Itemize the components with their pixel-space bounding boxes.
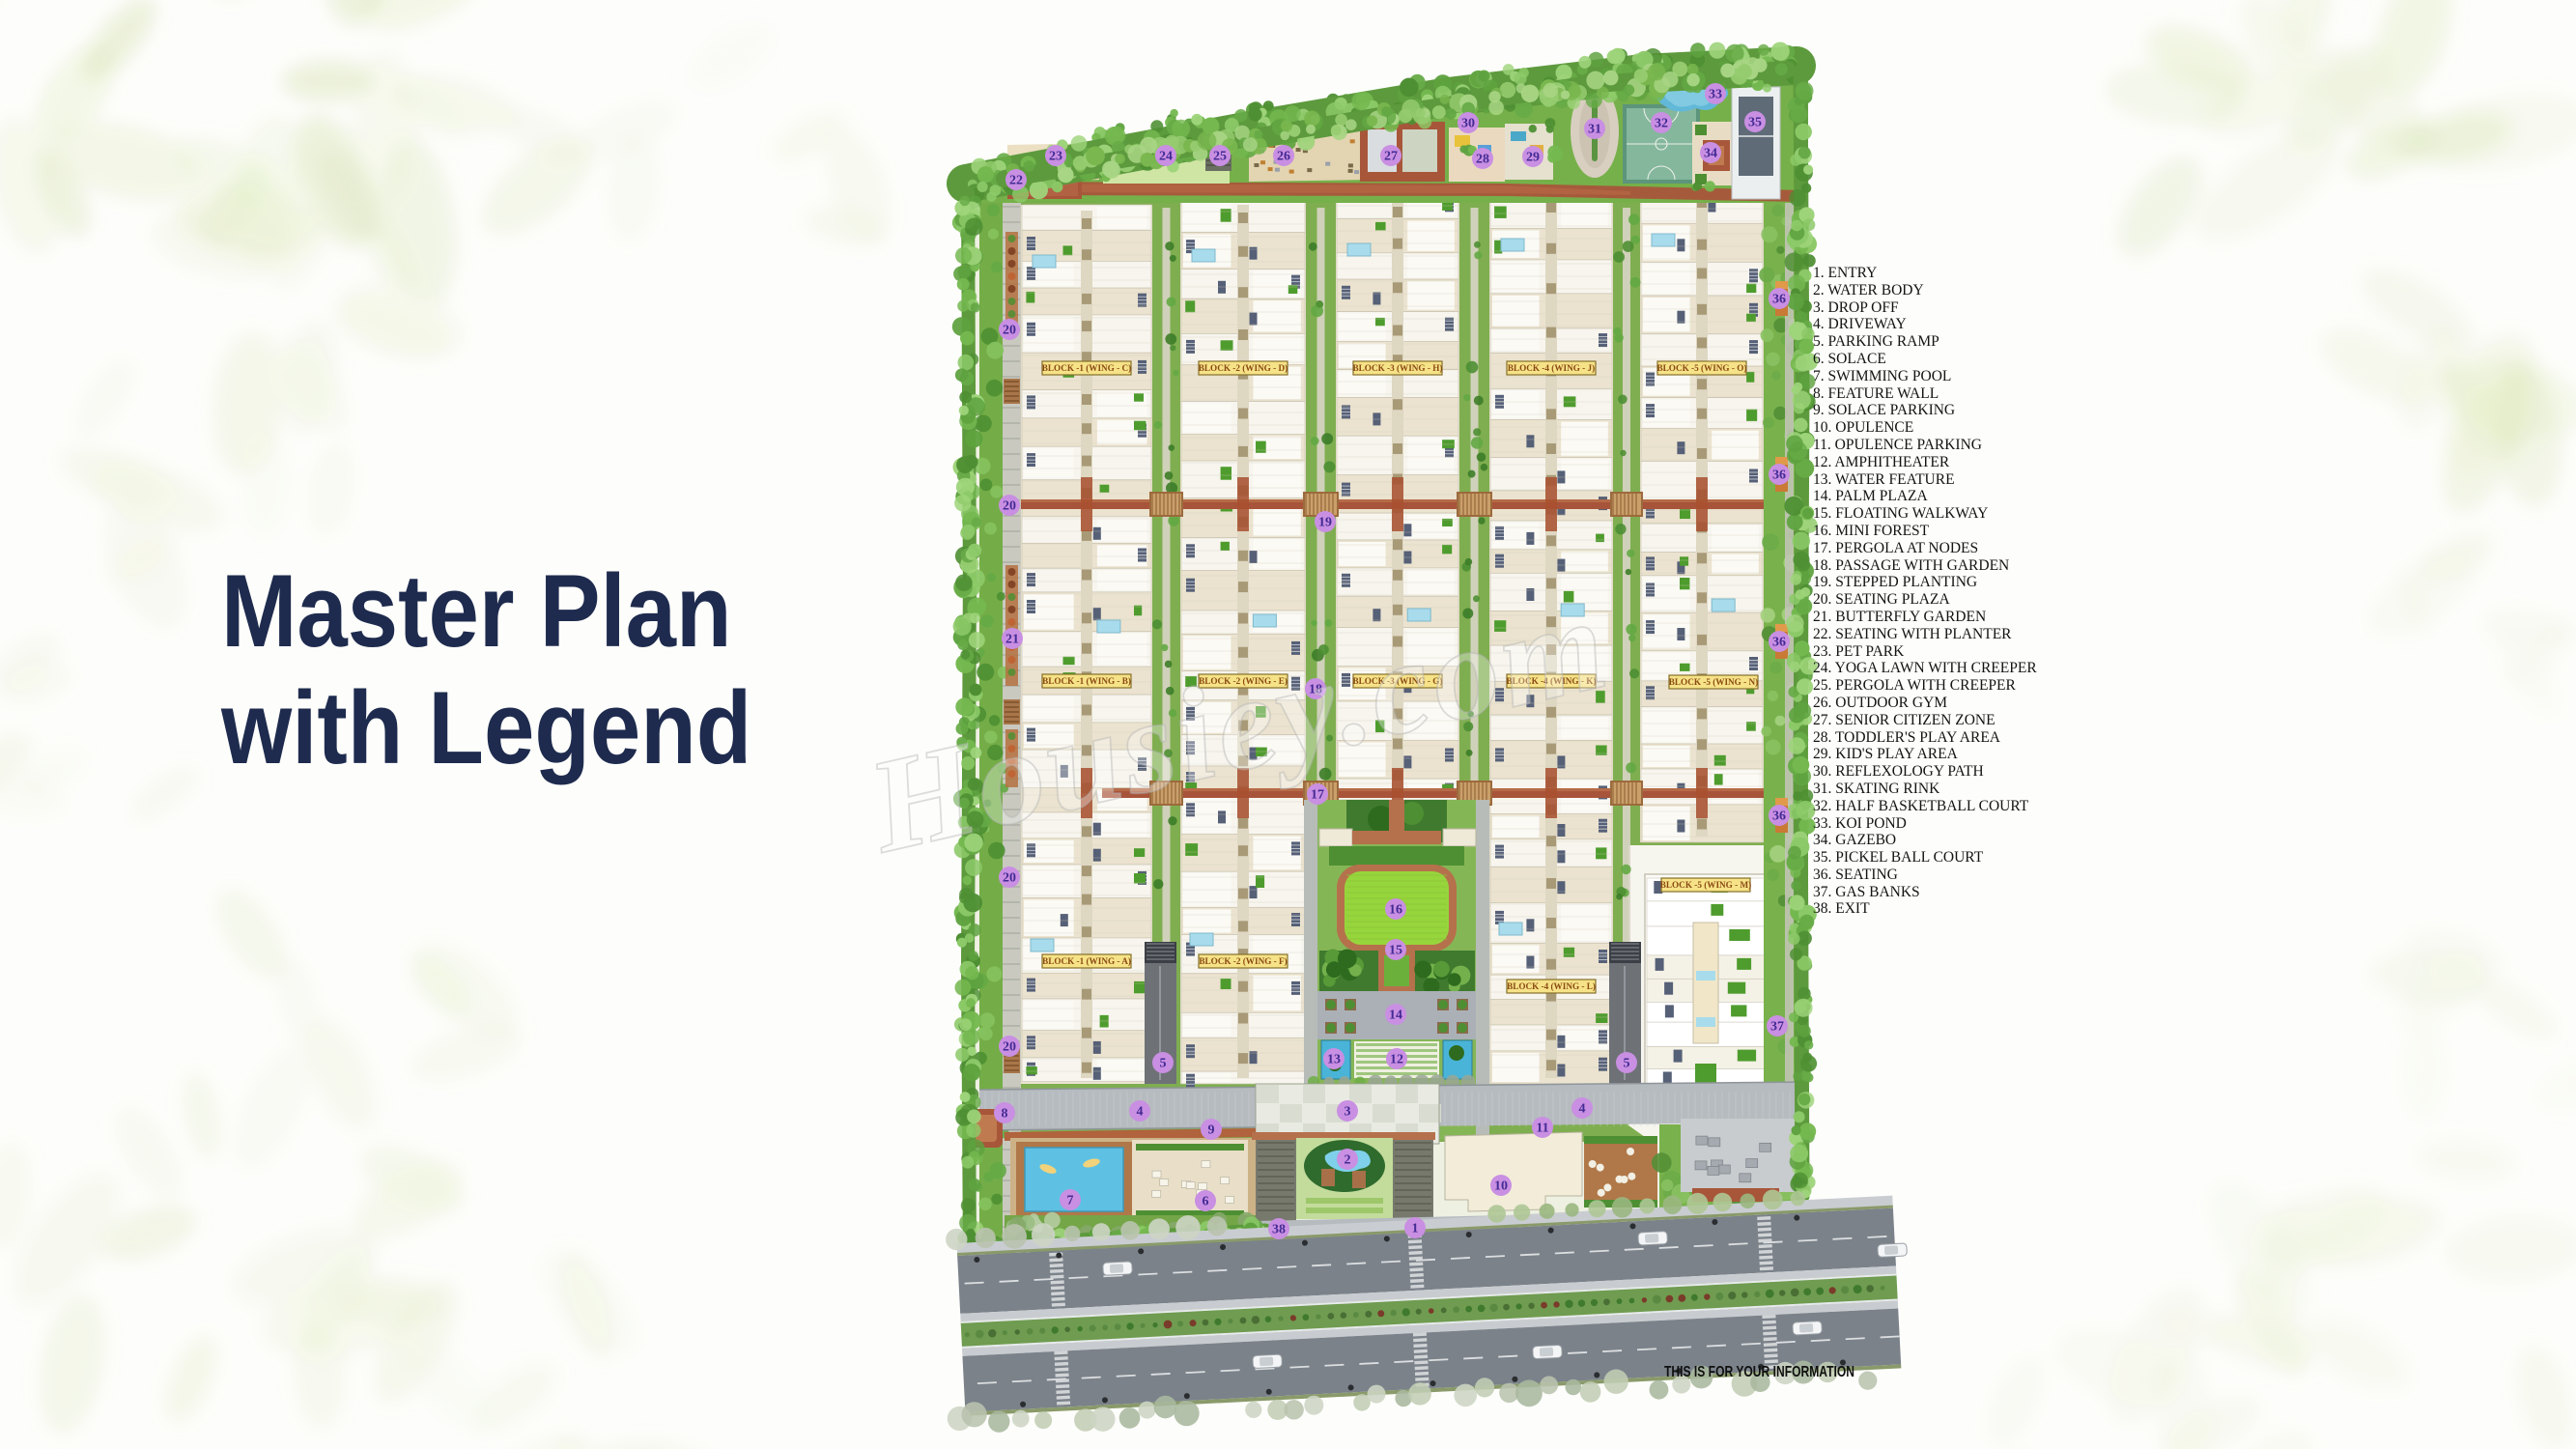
svg-text:20: 20 <box>1003 1040 1016 1055</box>
svg-text:BLOCK -1 (WING - C): BLOCK -1 (WING - C) <box>1042 363 1131 373</box>
svg-text:32: 32 <box>1655 117 1668 131</box>
svg-text:36: 36 <box>1772 469 1786 483</box>
svg-text:13: 13 <box>1327 1053 1341 1067</box>
svg-text:BLOCK -5 (WING - N): BLOCK -5 (WING - N) <box>1669 677 1758 687</box>
svg-text:29: 29 <box>1526 151 1540 165</box>
svg-text:27: 27 <box>1384 150 1398 164</box>
svg-text:36: 36 <box>1772 293 1786 307</box>
svg-text:4: 4 <box>1579 1102 1586 1117</box>
svg-text:14: 14 <box>1389 1009 1402 1023</box>
svg-text:19: 19 <box>1318 516 1332 530</box>
svg-text:24: 24 <box>1159 150 1173 164</box>
svg-text:20: 20 <box>1003 324 1016 338</box>
svg-text:31: 31 <box>1588 123 1601 137</box>
svg-text:BLOCK -2 (WING - D): BLOCK -2 (WING - D) <box>1199 363 1288 373</box>
svg-text:9: 9 <box>1208 1123 1215 1138</box>
svg-text:5: 5 <box>1624 1057 1630 1071</box>
svg-text:1: 1 <box>1412 1222 1419 1236</box>
svg-text:20: 20 <box>1003 871 1016 886</box>
svg-text:3: 3 <box>1345 1105 1351 1120</box>
svg-text:4: 4 <box>1137 1105 1144 1120</box>
svg-text:38: 38 <box>1272 1223 1286 1237</box>
svg-text:2: 2 <box>1345 1153 1351 1168</box>
svg-text:BLOCK -4 (WING - J): BLOCK -4 (WING - J) <box>1508 363 1595 373</box>
svg-text:12: 12 <box>1390 1053 1403 1067</box>
svg-text:36: 36 <box>1772 810 1786 824</box>
svg-text:6: 6 <box>1203 1195 1209 1209</box>
svg-text:BLOCK -2 (WING - F): BLOCK -2 (WING - F) <box>1199 956 1287 966</box>
svg-text:33: 33 <box>1709 88 1722 102</box>
svg-text:5: 5 <box>1160 1057 1167 1071</box>
svg-text:23: 23 <box>1049 150 1062 164</box>
svg-text:35: 35 <box>1748 116 1762 130</box>
svg-text:36: 36 <box>1772 636 1786 650</box>
svg-text:15: 15 <box>1389 944 1402 958</box>
svg-text:10: 10 <box>1494 1179 1508 1194</box>
svg-text:30: 30 <box>1461 117 1475 131</box>
svg-text:7: 7 <box>1067 1194 1074 1208</box>
svg-text:BLOCK -5 (WING - O): BLOCK -5 (WING - O) <box>1657 363 1747 373</box>
svg-text:26: 26 <box>1277 150 1290 164</box>
svg-text:BLOCK -4 (WING - L): BLOCK -4 (WING - L) <box>1507 981 1596 991</box>
svg-text:BLOCK -5 (WING - M): BLOCK -5 (WING - M) <box>1660 880 1751 890</box>
svg-text:34: 34 <box>1704 147 1717 161</box>
svg-text:28: 28 <box>1476 153 1489 167</box>
svg-text:BLOCK -3 (WING - H): BLOCK -3 (WING - H) <box>1353 363 1443 373</box>
svg-text:11: 11 <box>1536 1122 1548 1136</box>
svg-text:16: 16 <box>1389 903 1402 918</box>
svg-text:17: 17 <box>1311 788 1324 803</box>
svg-text:20: 20 <box>1003 499 1016 514</box>
svg-text:22: 22 <box>1009 174 1023 188</box>
svg-text:8: 8 <box>1002 1107 1008 1122</box>
svg-text:37: 37 <box>1770 1020 1784 1035</box>
svg-text:BLOCK -1 (WING - A): BLOCK -1 (WING - A) <box>1042 956 1131 966</box>
svg-text:25: 25 <box>1213 150 1227 164</box>
svg-text:21: 21 <box>1005 633 1019 647</box>
